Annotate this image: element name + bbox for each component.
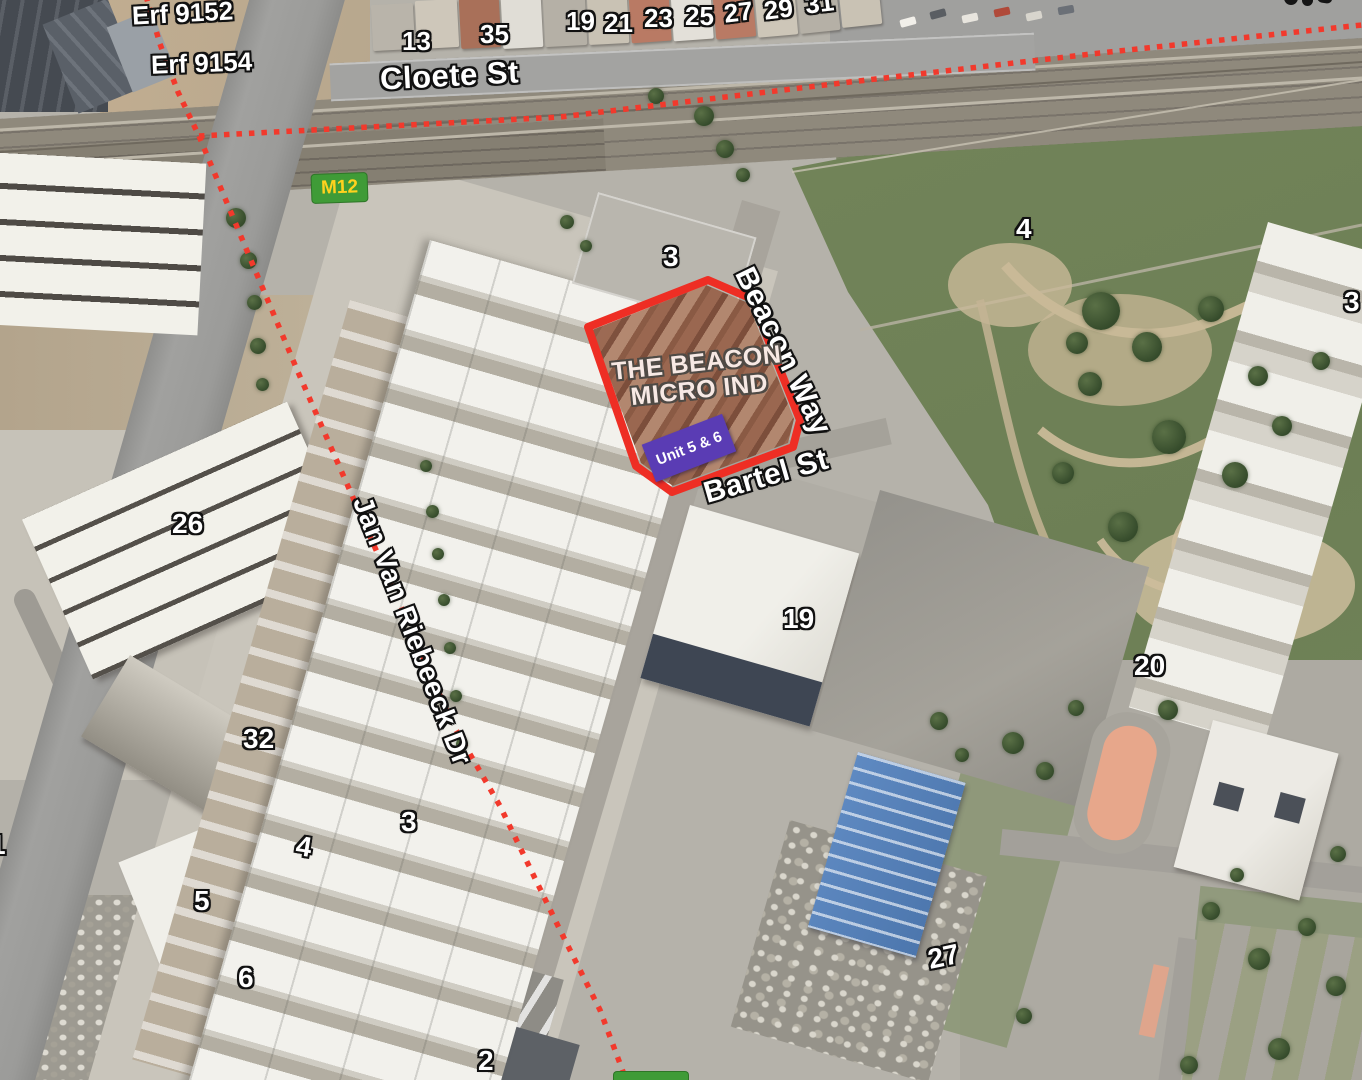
label-parcel-4-field: 4 [1016,213,1032,245]
label-parcel-19: 19 [783,603,814,635]
tree [226,208,246,228]
label-house-19: 19 [566,6,595,37]
label-parcel-32: 32 [243,723,274,755]
tree [1066,332,1088,354]
tree [1152,420,1186,454]
building-window-1 [1213,782,1244,812]
tree [1002,732,1024,754]
building-window-2 [1274,792,1306,824]
label-parcel-26: 26 [172,508,203,540]
tree [1052,462,1074,484]
tree [1198,296,1224,322]
route-badge-label: M12 [321,176,359,199]
tree [1222,462,1248,488]
label-erf-9154: Erf 9154 [150,46,252,81]
label-erf-9152: Erf 9152 [131,0,234,32]
tree [580,240,592,252]
label-house-31: 31 [803,0,835,21]
tree [256,378,269,391]
house-roof [838,0,883,28]
tree [1108,512,1138,542]
label-parcel-6: 6 [238,962,254,994]
tree [1268,1038,1290,1060]
tree [560,215,574,229]
label-house-35: 35 [480,19,509,50]
tree [1248,366,1268,386]
tree [250,338,266,354]
label-parcel-27: 27 [925,938,962,976]
label-house-27: 27 [722,0,754,30]
label-house-23: 23 [644,3,673,34]
tree [247,295,262,310]
label-parcel-2: 2 [478,1045,494,1077]
tree [1248,948,1270,970]
tree [432,548,444,560]
tree [694,106,714,126]
label-house-13: 13 [402,26,431,57]
tree [240,252,257,269]
courtyard-loop-inner [1082,720,1162,846]
label-house-25: 25 [685,1,714,32]
tree [1230,868,1244,882]
tree [420,460,432,472]
route-badge-m12: M12 [310,172,368,204]
tree [1180,1056,1198,1074]
tree [1272,416,1292,436]
tree [736,168,750,182]
tree [1078,372,1102,396]
tree [930,712,948,730]
tree [1016,1008,1032,1024]
label-parcel-3-right-edge: 3 [1344,286,1360,318]
label-house-29: 29 [762,0,794,27]
tree [716,140,734,158]
label-cloete-st: Cloete St [379,54,520,97]
tree [426,505,439,518]
label-house-21: 21 [604,8,633,39]
building-19-navy-wing [640,634,822,727]
tree [438,594,450,606]
tree [1158,700,1178,720]
label-parcel-5: 5 [194,885,210,917]
map-canvas[interactable]: M12 Unit 5 & 6 Erf 9152 Erf 9154 Cloete … [0,0,1362,1080]
route-badge-m12-bottom-partial [613,1071,689,1080]
building-warehouse-west [0,153,206,336]
tree [1330,846,1346,862]
tree [1132,332,1162,362]
label-parcel-1-partial: 1 [0,829,6,861]
tree [1082,292,1120,330]
tree [955,748,969,762]
tree [648,88,664,104]
tree [1298,918,1316,936]
tree [444,642,456,654]
tree [1036,762,1054,780]
tree [1202,902,1220,920]
label-parcel-3: 3 [401,806,417,838]
tree [1068,700,1084,716]
tree [1312,352,1330,370]
label-parcel-20: 20 [1134,650,1165,682]
tree [1326,976,1346,996]
label-parcel-3-top: 3 [663,241,679,273]
